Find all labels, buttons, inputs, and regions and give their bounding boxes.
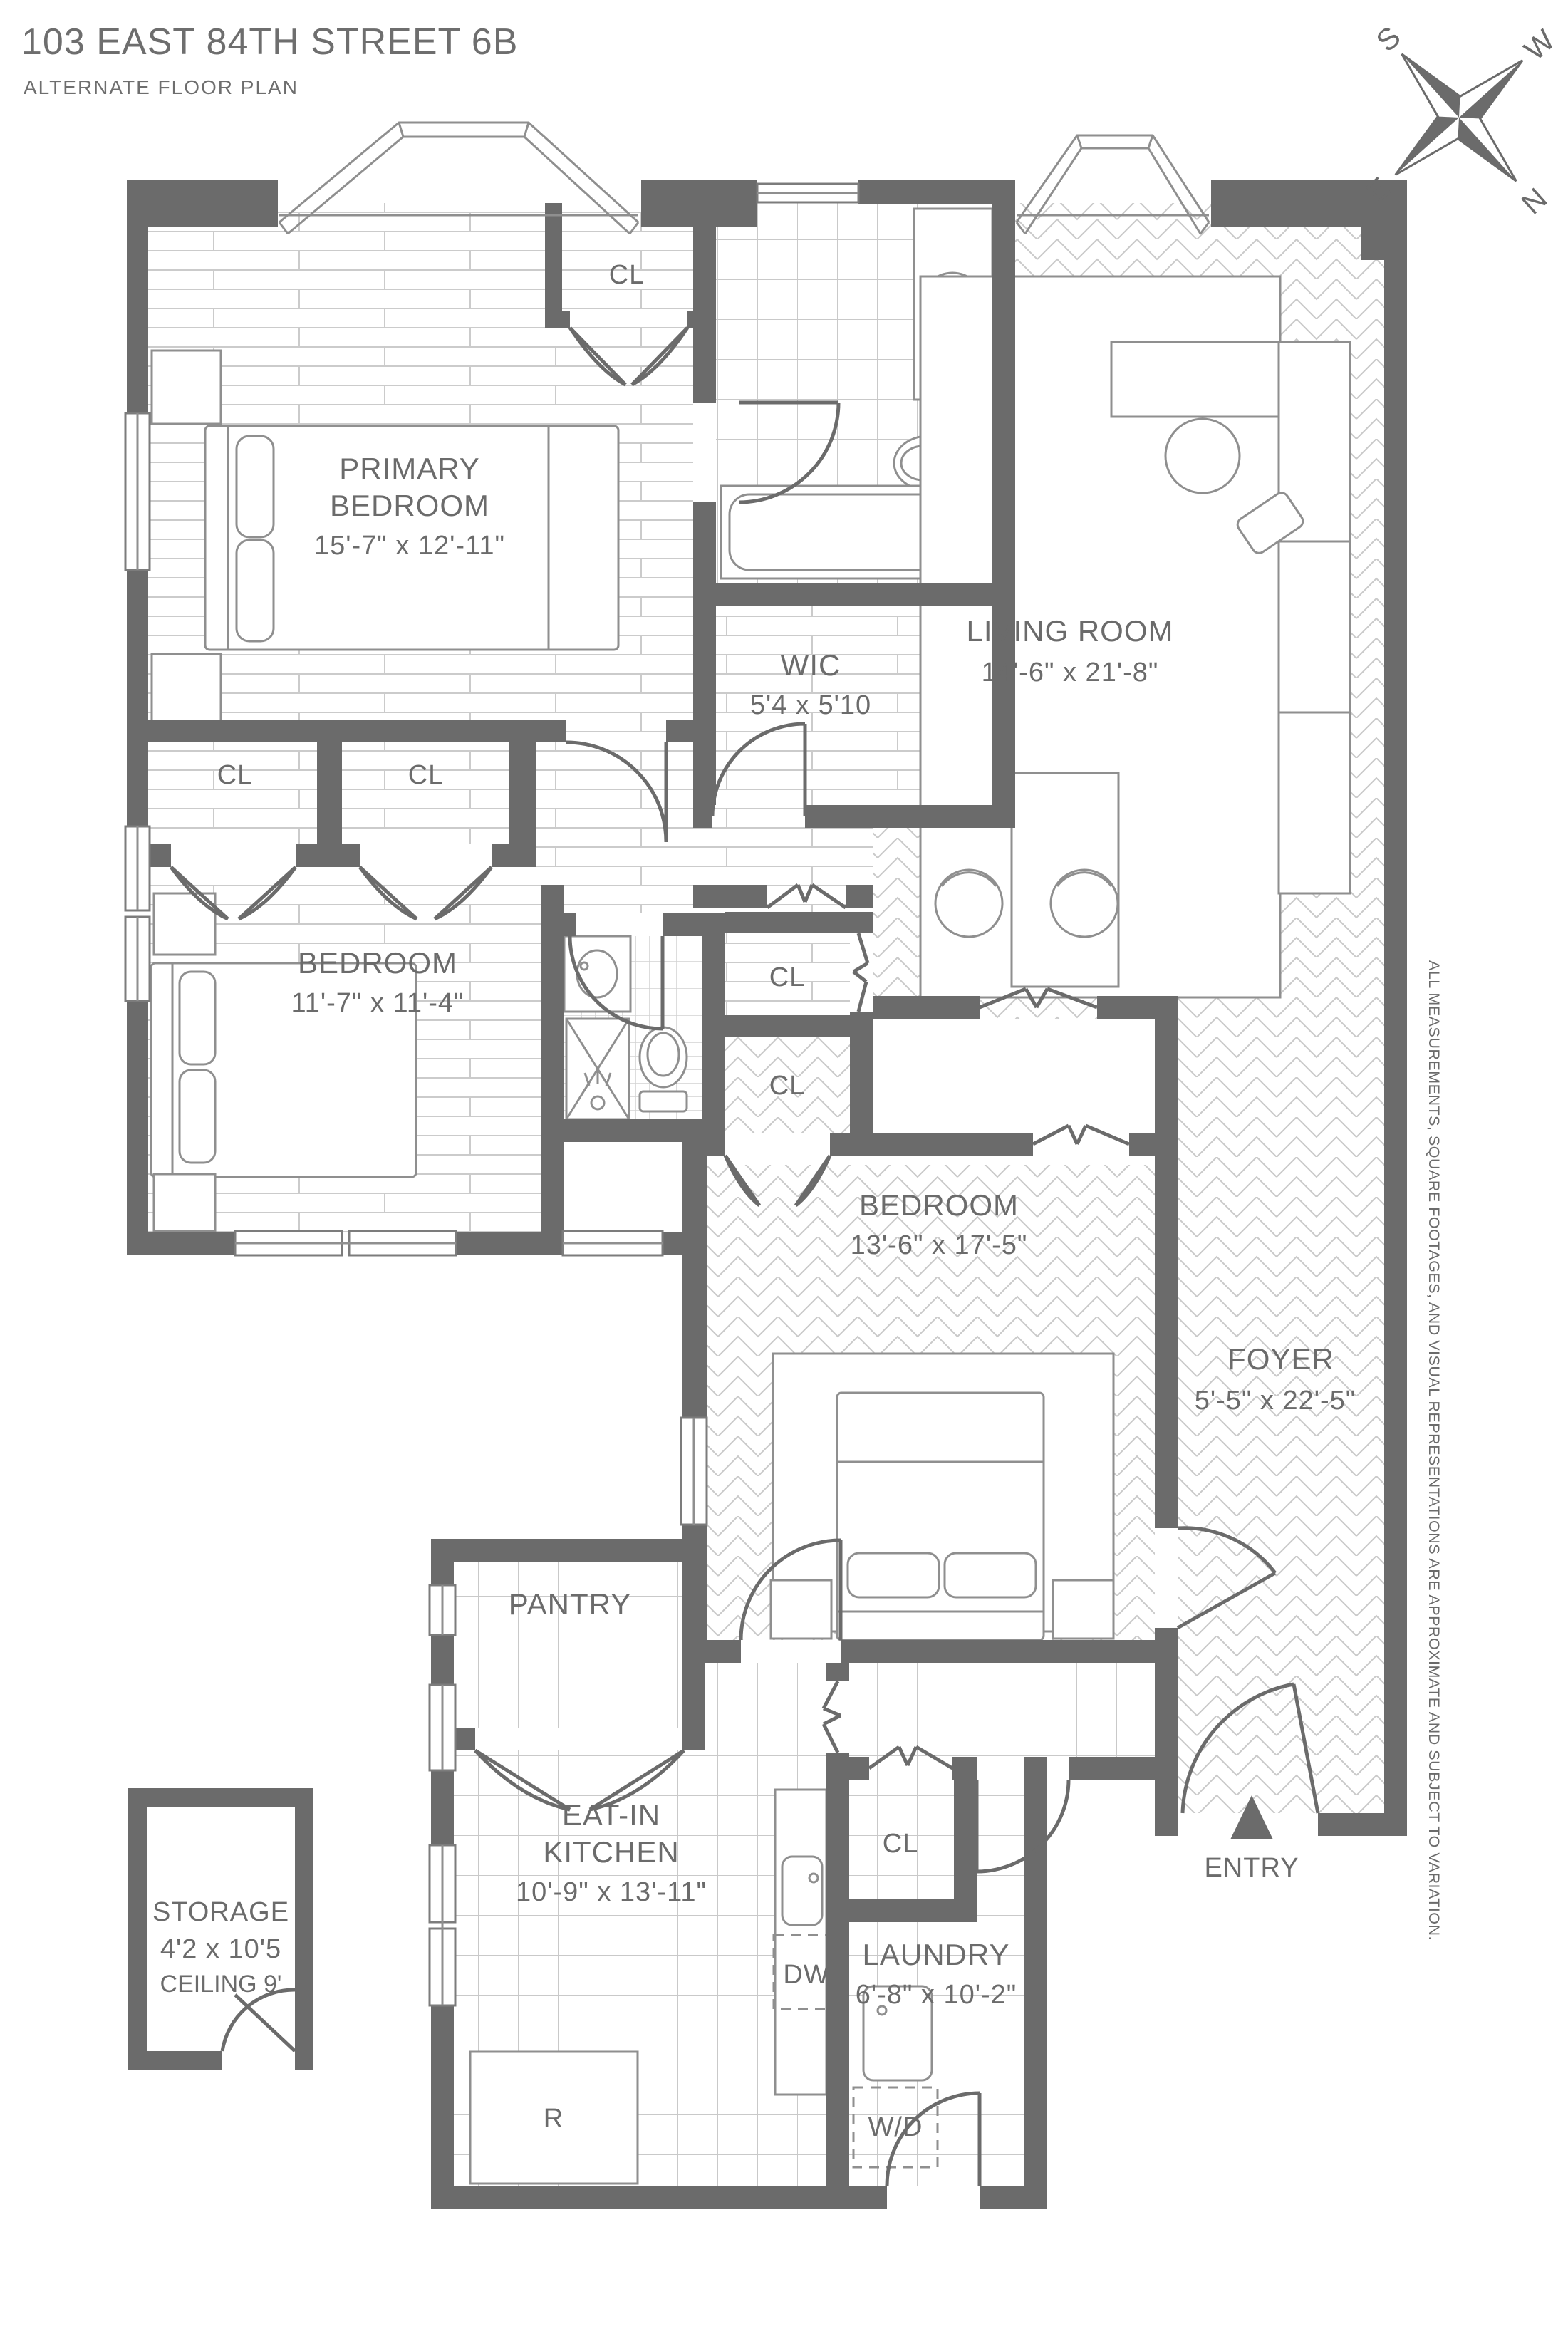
closet-label: CL xyxy=(217,760,254,790)
primary-bedroom-label: PRIMARY xyxy=(339,452,480,485)
entry-label: ENTRY xyxy=(1204,1853,1299,1883)
pantry-label: PANTRY xyxy=(509,1587,631,1621)
floor-plan: PRIMARY BEDROOM 15'-7" x 12'-11" CL LIVI… xyxy=(0,0,1568,2351)
window-icon xyxy=(125,826,150,1001)
pillow-icon xyxy=(945,1553,1036,1597)
storage-dims: 4'2 x 10'5 xyxy=(160,1934,281,1964)
window-icon xyxy=(757,184,858,202)
kitchen-floor-ne xyxy=(705,1663,826,1750)
foyer-label: FOYER xyxy=(1227,1342,1334,1376)
page-subtitle: ALTERNATE FLOOR PLAN xyxy=(24,76,298,98)
disclaimer-text: ALL MEASUREMENTS, SQUARE FOOTAGES, AND V… xyxy=(1426,960,1443,1941)
pantry-floor xyxy=(454,1562,682,1728)
living-room-dims: 14'-6" x 21'-8" xyxy=(982,658,1159,687)
opening-icon xyxy=(853,933,868,1012)
living-room-label: LIVING ROOM xyxy=(966,614,1173,648)
pillow-icon xyxy=(180,972,215,1064)
pillow-icon xyxy=(180,1070,215,1163)
foyer-dims: 5'-5" x 22'-5" xyxy=(1195,1386,1356,1416)
nightstand-icon xyxy=(1053,1580,1113,1639)
sofa-icon xyxy=(1279,342,1350,893)
door-icon xyxy=(222,1990,295,2051)
nightstand-icon xyxy=(152,654,221,727)
bedroom3-dims: 13'-6" x 17'-5" xyxy=(851,1230,1028,1260)
swivel-chair-icon xyxy=(1051,870,1118,937)
washer-dryer-label: W/D xyxy=(868,2112,923,2142)
pillow-icon xyxy=(237,436,274,537)
closet-label: CL xyxy=(769,962,806,992)
nightstand-icon xyxy=(152,351,221,424)
pillow-icon xyxy=(848,1553,939,1597)
compass-w: W xyxy=(1517,23,1561,67)
compass-s: S xyxy=(1369,20,1406,58)
wic-label: WIC xyxy=(781,648,841,682)
bedroom2-label: BEDROOM xyxy=(298,946,457,980)
closet-label: CL xyxy=(408,760,445,790)
bedroom3-label: BEDROOM xyxy=(859,1188,1019,1222)
closet-label: CL xyxy=(609,260,645,290)
wic-dims: 5'4 x 5'10 xyxy=(750,690,871,720)
laundry-dims: 6'-8" x 10'-2" xyxy=(856,1980,1017,2010)
armchair-icon xyxy=(1165,419,1240,493)
pillow-icon xyxy=(237,540,274,641)
primary-bedroom-label2: BEDROOM xyxy=(330,489,489,522)
closet-label: CL xyxy=(769,1071,806,1101)
closet-label: CL xyxy=(883,1829,919,1859)
window-icon xyxy=(125,413,150,570)
bedroom3-furniture xyxy=(771,1354,1113,1640)
nightstand-icon xyxy=(154,1174,215,1231)
dishwasher-label: DW xyxy=(783,1960,829,1990)
bedroom2-dims: 11'-7" x 11'-4" xyxy=(291,988,464,1018)
storage-label: STORAGE xyxy=(152,1897,289,1927)
counter-icon xyxy=(775,1790,826,2095)
opening-icon xyxy=(1033,1126,1129,1144)
range-label: R xyxy=(544,2104,564,2134)
nightstand-icon xyxy=(771,1580,831,1639)
toilet-tank-icon xyxy=(640,1091,687,1111)
window-icon xyxy=(235,1231,663,1255)
kitchen-sink-icon xyxy=(782,1857,822,1925)
kitchen-label2: KITCHEN xyxy=(543,1835,679,1869)
page-title: 103 EAST 84TH STREET 6B xyxy=(21,21,518,63)
compass-n: N xyxy=(1515,181,1553,220)
kitchen-dims: 10'-9" x 13'-11" xyxy=(516,1877,707,1907)
window-icon xyxy=(681,1418,707,1525)
floor-plan-page: PRIMARY BEDROOM 15'-7" x 12'-11" CL LIVI… xyxy=(0,0,1568,2351)
kitchen-label: EAT-IN xyxy=(562,1798,660,1832)
storage-ceiling: CEILING 9' xyxy=(160,1971,282,1998)
swivel-chair-icon xyxy=(935,870,1002,937)
bed-icon xyxy=(837,1393,1044,1640)
nightstand-icon xyxy=(154,893,215,955)
primary-bedroom-dims: 15'-7" x 12'-11" xyxy=(314,531,505,561)
laundry-label: LAUNDRY xyxy=(863,1938,1010,1971)
